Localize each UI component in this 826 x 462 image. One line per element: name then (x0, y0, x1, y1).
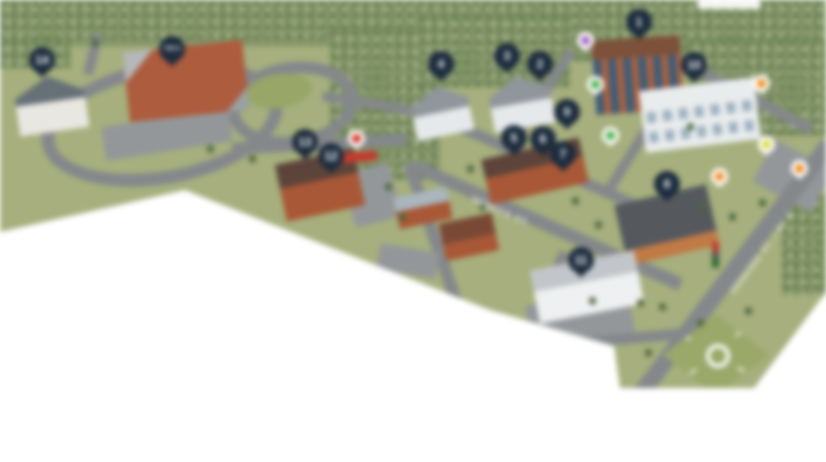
pin-label: 1 (626, 9, 652, 35)
pin-color-dot (606, 131, 615, 140)
tree-icon (637, 299, 644, 306)
map-pin-12[interactable]: 12 (318, 143, 344, 177)
building-14-house (12, 71, 89, 136)
orange-pin[interactable] (711, 168, 728, 191)
map-pin-3[interactable]: 3 (494, 43, 520, 77)
purple-pin[interactable] (577, 32, 594, 55)
south-parking (376, 243, 440, 279)
tree-icon (595, 221, 602, 228)
pin-label: 9 (554, 99, 580, 125)
pin-label: YMCA (159, 36, 185, 62)
roundabout-dash (689, 368, 697, 375)
map-pin-13[interactable]: 13 (292, 129, 318, 163)
map-pin-7[interactable]: 7 (550, 141, 576, 175)
pin-label: 5 (501, 125, 527, 151)
tree-icon (572, 197, 579, 204)
red-pin[interactable] (348, 130, 365, 153)
green-pin[interactable] (602, 127, 619, 150)
tree-icon (385, 183, 392, 190)
tree-icon (659, 303, 666, 310)
tree-icon (249, 155, 256, 162)
map-pin-4[interactable]: 4 (428, 51, 454, 85)
tree-icon (645, 349, 652, 356)
building-ymca (123, 40, 250, 122)
pin-color-dot (581, 36, 590, 45)
campus-map-screenshot: SENECA ST. GENESEE ST. / RT 5 1234567891… (0, 0, 826, 462)
pin-label: 12 (318, 143, 344, 169)
tree-icon (399, 213, 406, 220)
map-blur-layer: SENECA ST. GENESEE ST. / RT 5 1234567891… (0, 0, 826, 462)
tree-icon (759, 199, 766, 206)
pin-label: 2 (527, 51, 553, 77)
tree-icon (687, 123, 694, 130)
building-10-hall (639, 77, 762, 153)
map-pin-2[interactable]: 2 (527, 51, 553, 85)
pin-color-dot (762, 140, 771, 149)
map-pin-14[interactable]: 14 (29, 47, 55, 81)
orange-pin[interactable] (753, 75, 770, 98)
green-pin[interactable] (587, 76, 604, 99)
map-pin-ymca[interactable]: YMCA (159, 36, 185, 70)
traffic-light (712, 242, 719, 268)
tree-icon (527, 327, 534, 334)
roundabout-circle (706, 344, 730, 368)
roundabout-dash (737, 366, 745, 373)
tree-icon (699, 203, 706, 210)
window-row (646, 100, 753, 124)
pin-label: 11 (568, 247, 594, 273)
pin-color-dot (757, 79, 766, 88)
yellow-pin[interactable] (758, 136, 775, 159)
pin-color-dot (795, 164, 804, 173)
map-pin-8[interactable]: 8 (654, 171, 680, 205)
orange-pin[interactable] (791, 160, 808, 183)
roundabout-dash (735, 330, 743, 337)
map-pin-5[interactable]: 5 (501, 125, 527, 159)
map-pin-10[interactable]: 10 (681, 52, 707, 86)
tree-icon (207, 145, 214, 152)
map-canvas: SENECA ST. GENESEE ST. / RT 5 1234567891… (0, 0, 826, 462)
map-pin-9[interactable]: 9 (554, 99, 580, 133)
pin-label: 7 (550, 141, 576, 167)
cropped-text-smudge (697, 0, 761, 9)
window-row (648, 119, 755, 143)
tree-icon (745, 307, 752, 314)
tree-icon (697, 319, 704, 326)
pin-label: 8 (654, 171, 680, 197)
pin-color-dot (352, 134, 361, 143)
roundabout-green (663, 314, 769, 396)
tree-icon (467, 165, 474, 172)
pin-color-dot (591, 80, 600, 89)
map-pin-1[interactable]: 1 (626, 9, 652, 43)
pin-color-dot (715, 172, 724, 181)
pin-label: 13 (292, 129, 318, 155)
tree-icon (92, 39, 99, 46)
pin-label: 10 (681, 52, 707, 78)
tree-icon (729, 213, 736, 220)
pin-label: 14 (29, 47, 55, 73)
pin-label: 3 (494, 43, 520, 69)
tree-icon (589, 297, 596, 304)
pin-label: 4 (428, 51, 454, 77)
map-pin-11[interactable]: 11 (568, 247, 594, 281)
building-annex-b (439, 213, 500, 261)
